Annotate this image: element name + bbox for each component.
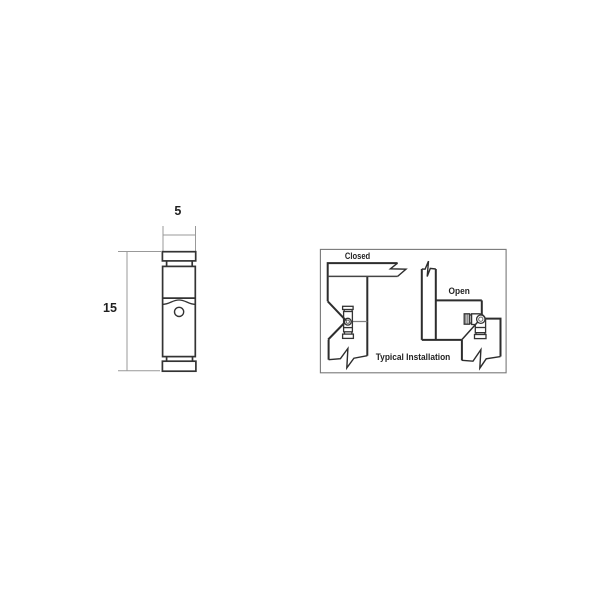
svg-text:Typical Installation: Typical Installation [376,352,451,363]
svg-text:5: 5 [174,204,181,218]
svg-text:15: 15 [103,301,117,315]
svg-text:Closed: Closed [345,251,370,261]
svg-text:Open: Open [449,286,470,296]
